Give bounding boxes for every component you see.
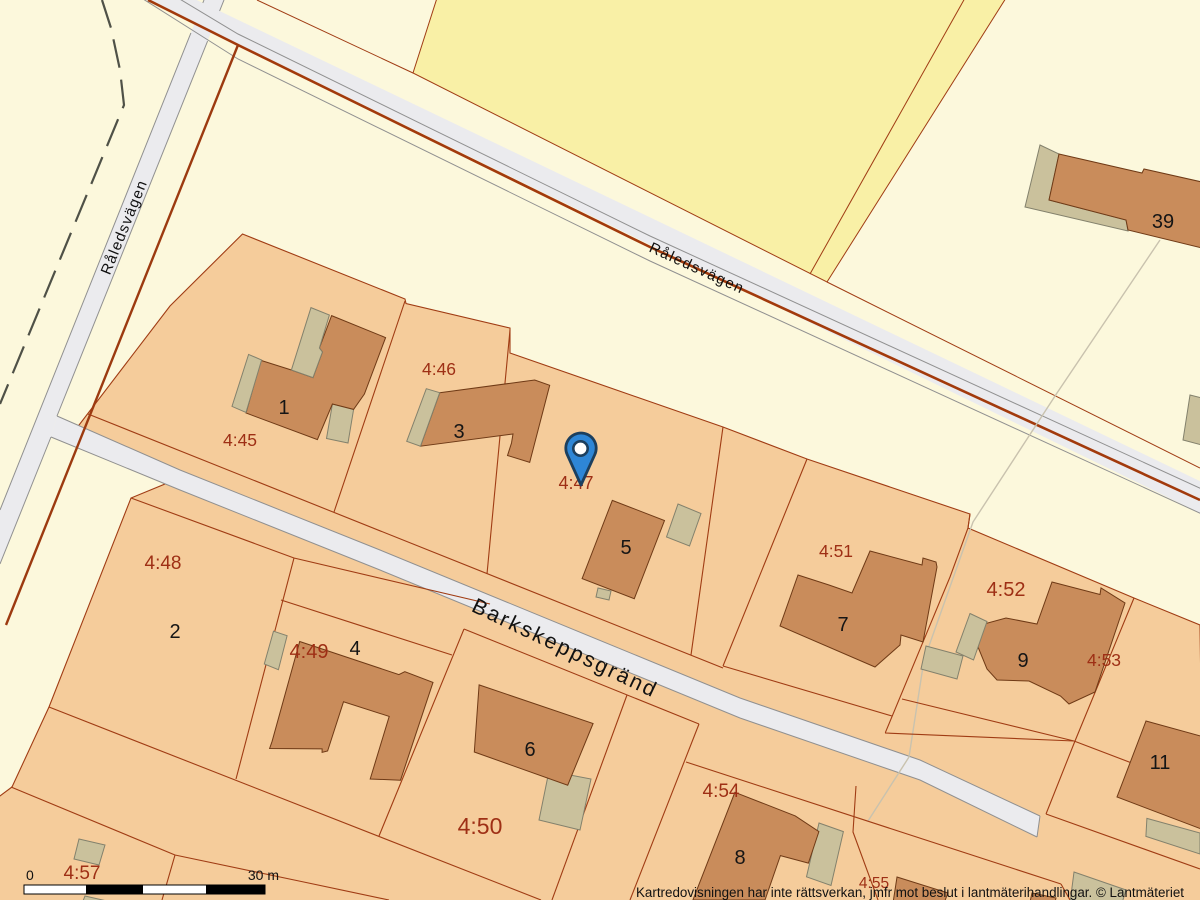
svg-text:4: 4 — [349, 638, 360, 660]
svg-text:11: 11 — [1150, 752, 1171, 774]
svg-text:3: 3 — [453, 421, 464, 443]
svg-text:4:48: 4:48 — [145, 553, 182, 574]
svg-text:4:51: 4:51 — [819, 541, 853, 561]
svg-text:4:57: 4:57 — [64, 863, 101, 884]
svg-text:7: 7 — [837, 614, 848, 636]
svg-text:8: 8 — [734, 847, 745, 869]
svg-text:30 m: 30 m — [248, 867, 279, 883]
svg-text:Kartredovisningen har inte rät: Kartredovisningen har inte rättsverkan, … — [636, 885, 1184, 900]
svg-text:39: 39 — [1152, 211, 1174, 233]
svg-text:4:53: 4:53 — [1087, 650, 1121, 670]
svg-text:4:50: 4:50 — [458, 813, 503, 839]
svg-text:4:49: 4:49 — [290, 641, 329, 663]
svg-text:4:46: 4:46 — [422, 359, 456, 379]
svg-text:4:54: 4:54 — [703, 781, 740, 802]
svg-text:2: 2 — [169, 621, 180, 643]
svg-text:4:45: 4:45 — [223, 430, 257, 450]
svg-text:6: 6 — [524, 739, 535, 761]
svg-text:4:52: 4:52 — [987, 579, 1026, 601]
svg-text:9: 9 — [1017, 650, 1028, 672]
svg-text:1: 1 — [278, 397, 289, 419]
svg-text:0: 0 — [26, 867, 34, 883]
svg-text:5: 5 — [620, 537, 631, 559]
